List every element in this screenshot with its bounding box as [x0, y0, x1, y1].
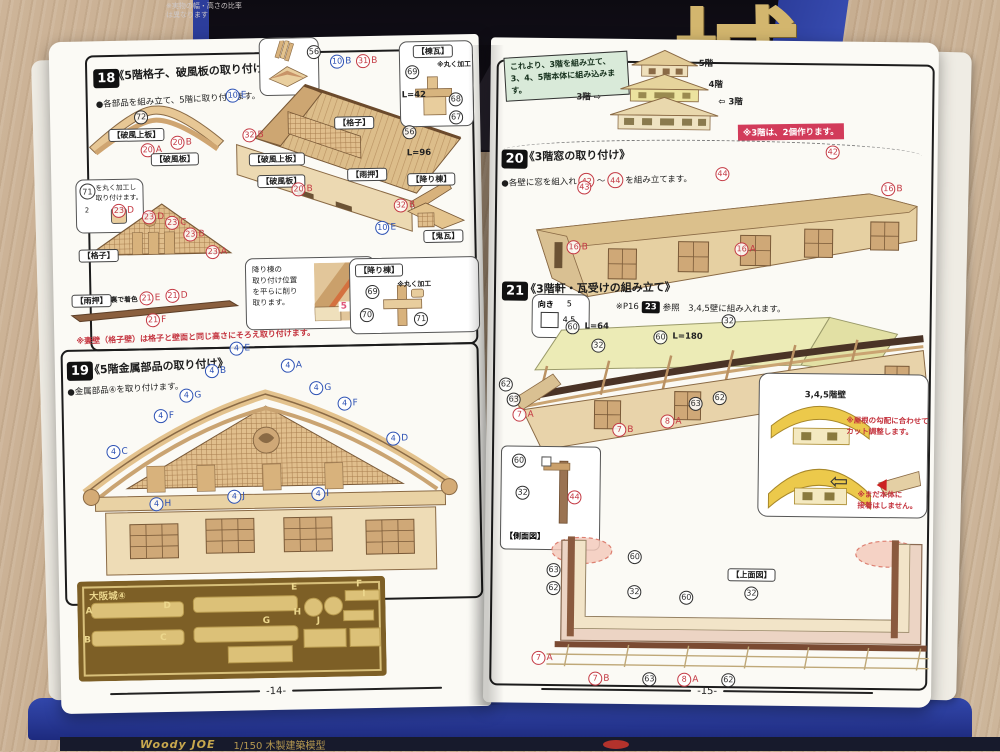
do-not-glue-note: ※まだ本体に 接着はしません。 [857, 490, 917, 512]
box-scale-note: ※実物の幅・高さの比率 は異なります [166, 2, 242, 21]
part-label: 60 [653, 330, 667, 344]
part-label: 16B [566, 240, 588, 254]
part-label: 【破風上板】 [249, 152, 305, 166]
part-label: B [84, 636, 91, 645]
part-label: F [356, 580, 362, 589]
manual-left-page: 18 《5階格子、破風板の取り付け》 ●各部品を組み立て、5階に取り付けます。 [49, 34, 492, 714]
part-label: 56 [307, 45, 321, 59]
part-label: 【格子】 [79, 249, 119, 263]
part-label: I [362, 590, 366, 599]
part-label: 69 [405, 65, 419, 79]
part-label: 62 [713, 391, 727, 405]
photo-of-instruction-manual: { "box": { "note": "※実物の幅・高さの比率\nは異なります"… [0, 0, 1000, 751]
part-label: 16A [734, 242, 756, 256]
part-label: 10B [330, 54, 352, 68]
red-oval-logo [603, 740, 629, 749]
part-label: 56 [402, 125, 416, 139]
kit-box-side-strip: Woody JOE 1/150 木製建築模型 [60, 737, 1000, 751]
part-label: 4F [337, 396, 357, 410]
part-label: 【破風板】 [151, 152, 199, 166]
part-label: 4I [311, 487, 329, 501]
part-label: 72 [134, 110, 148, 124]
part-label: 43 [577, 180, 591, 194]
part-label: L=96 [407, 149, 432, 158]
part-label: 44 [567, 490, 581, 504]
part-label: 32B [394, 198, 416, 212]
part-label: 63 [546, 563, 560, 577]
part-label: 16B [881, 182, 903, 196]
part-label: 32 [722, 314, 736, 328]
part-label: 4A [281, 358, 302, 372]
part-label: 【雨押】 [71, 294, 111, 308]
part-label: 60 [565, 320, 579, 334]
part-label: 42 [826, 145, 840, 159]
part-label: 20B [170, 135, 192, 149]
part-label: 23B [183, 227, 205, 241]
part-label: 8A [660, 414, 681, 428]
part-label: 32 [627, 585, 641, 599]
part-label: 4E [229, 341, 250, 355]
part-label: 4G [179, 388, 201, 402]
part-label: 4D [386, 431, 408, 445]
part-label: 3階 ⇨ [576, 93, 601, 102]
part-label: 60 [512, 454, 526, 468]
part-label: 4J [227, 490, 245, 504]
part-label: 60 [628, 550, 642, 564]
part-label: A [85, 607, 92, 616]
box-scale-text: 1/150 木製建築模型 [233, 737, 325, 752]
part-label: H [294, 608, 302, 617]
part-label: 23A [206, 245, 228, 259]
part-label: ※丸く加工 [437, 61, 471, 68]
part-label: 5階 [699, 60, 714, 69]
part-label: 【破風上板】 [108, 128, 164, 142]
part-label: 21E [139, 291, 160, 305]
part-label: 【棟瓦】 [413, 44, 453, 58]
part-label: L=42 [402, 91, 427, 100]
part-label: 4C [106, 445, 128, 459]
part-label: 3,4,5階壁 [805, 391, 846, 400]
part-label: 4階 [708, 81, 723, 90]
part-label: 4B [205, 364, 226, 378]
manual-right-page: これより、3階を組み立て、3、4、5階本体に組み込みます。 5階4階3階 ⇨⇦ … [483, 37, 939, 707]
part-label: L=64 [584, 322, 608, 331]
part-label: ※丸く加工 [397, 281, 431, 288]
part-label: 8A [677, 673, 698, 687]
part-label: 4F [154, 409, 174, 423]
brand-logo-text: Woody JOE [140, 738, 215, 751]
part-label: 10E [226, 88, 247, 102]
part-label: 44 [715, 167, 729, 181]
part-label: 7A [531, 651, 552, 665]
part-label: 10E [375, 221, 396, 235]
cut-adjust-note: ※屋根の勾配に合わせて カット調整します。 [846, 416, 929, 438]
part-label: 裏で着色 [110, 297, 137, 304]
part-label: 32 [744, 586, 758, 600]
part-label: L=180 [672, 333, 702, 342]
part-label: 62 [546, 581, 560, 595]
part-label: 4H [149, 497, 171, 511]
part-label: 7B [612, 423, 633, 437]
insert-direction-arrow: ⇦ [830, 471, 849, 493]
part-label: D [163, 602, 171, 611]
part-label: 63 [689, 397, 703, 411]
part-label: 23D [112, 204, 134, 218]
part-label: 【鬼瓦】 [423, 229, 463, 243]
part-label: 71 [414, 312, 428, 326]
part-label: 32 [591, 339, 605, 353]
part-label: 62 [721, 673, 735, 687]
part-label: 69 [365, 285, 379, 299]
part-label: 60 [679, 591, 693, 605]
book-spine-shadow [468, 45, 504, 705]
part-label: 31B [356, 54, 378, 68]
part-label: 【降り棟】 [355, 263, 403, 277]
part-label: 4G [309, 381, 331, 395]
part-label: C [160, 634, 167, 643]
part-label: 63 [507, 393, 521, 407]
part-label: E [291, 584, 297, 593]
part-label: 【格子】 [334, 116, 374, 130]
part-label: 21F [146, 313, 167, 327]
part-label: 32B [242, 128, 264, 142]
part-label: 32 [515, 486, 529, 500]
part-label: 7B [588, 672, 609, 686]
part-label: 20B [291, 182, 313, 196]
part-label: 23D [142, 210, 164, 224]
part-label: 【上面図】 [727, 568, 775, 582]
part-label: ⇦ 3階 [718, 98, 743, 107]
top-view-labels-layer: 【上面図】6063623260327A7B638A62 [483, 37, 939, 707]
part-label: G [263, 617, 271, 626]
part-label: 67 [449, 110, 463, 124]
part-label: J [317, 617, 321, 626]
part-label: 【降り棟】 [407, 172, 455, 186]
part-label: 7A [512, 408, 533, 422]
part-label: 【雨押】 [347, 168, 387, 182]
part-label: 68 [449, 92, 463, 106]
part-label: 63 [642, 672, 656, 686]
part-label: 70 [360, 308, 374, 322]
part-label: 21D [165, 289, 187, 303]
